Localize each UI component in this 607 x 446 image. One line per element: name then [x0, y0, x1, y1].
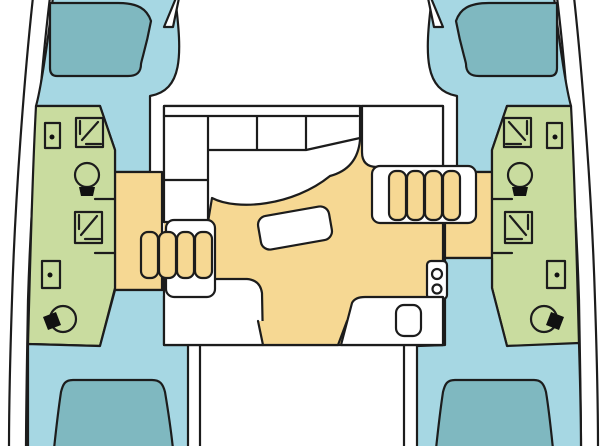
starboard-step-3 [425, 171, 442, 220]
port-aft-sink-drain-icon [48, 273, 53, 278]
port-forward-toilet-tank [79, 187, 95, 196]
galley-aft-counter [341, 297, 443, 345]
stove-burner-1 [432, 269, 442, 279]
cockpit-doorway [258, 321, 347, 345]
starboard-forward-toilet-tank [512, 187, 528, 196]
starboard-step-4 [443, 171, 460, 220]
forward-cabinet [362, 106, 443, 167]
starboard-step-1 [389, 171, 406, 220]
starboard-forward-berth [456, 3, 557, 76]
port-forward-sink-drain-icon [50, 135, 55, 140]
starboard-step-2 [407, 171, 424, 220]
stove-burner-2 [433, 285, 442, 294]
starboard-aft-berth [436, 380, 553, 446]
port-aft-berth [54, 380, 173, 446]
floor-plan: Catamaran interior deck floor plan [0, 0, 607, 446]
port-step-3 [177, 232, 194, 278]
starboard-aft-sink-drain-icon [555, 273, 560, 278]
port-step-4 [195, 232, 212, 278]
galley-sink [396, 305, 421, 336]
starboard-forward-sink-drain-icon [553, 135, 558, 140]
port-step-2 [159, 232, 176, 278]
port-step-1 [141, 232, 158, 278]
port-forward-berth [50, 3, 151, 76]
